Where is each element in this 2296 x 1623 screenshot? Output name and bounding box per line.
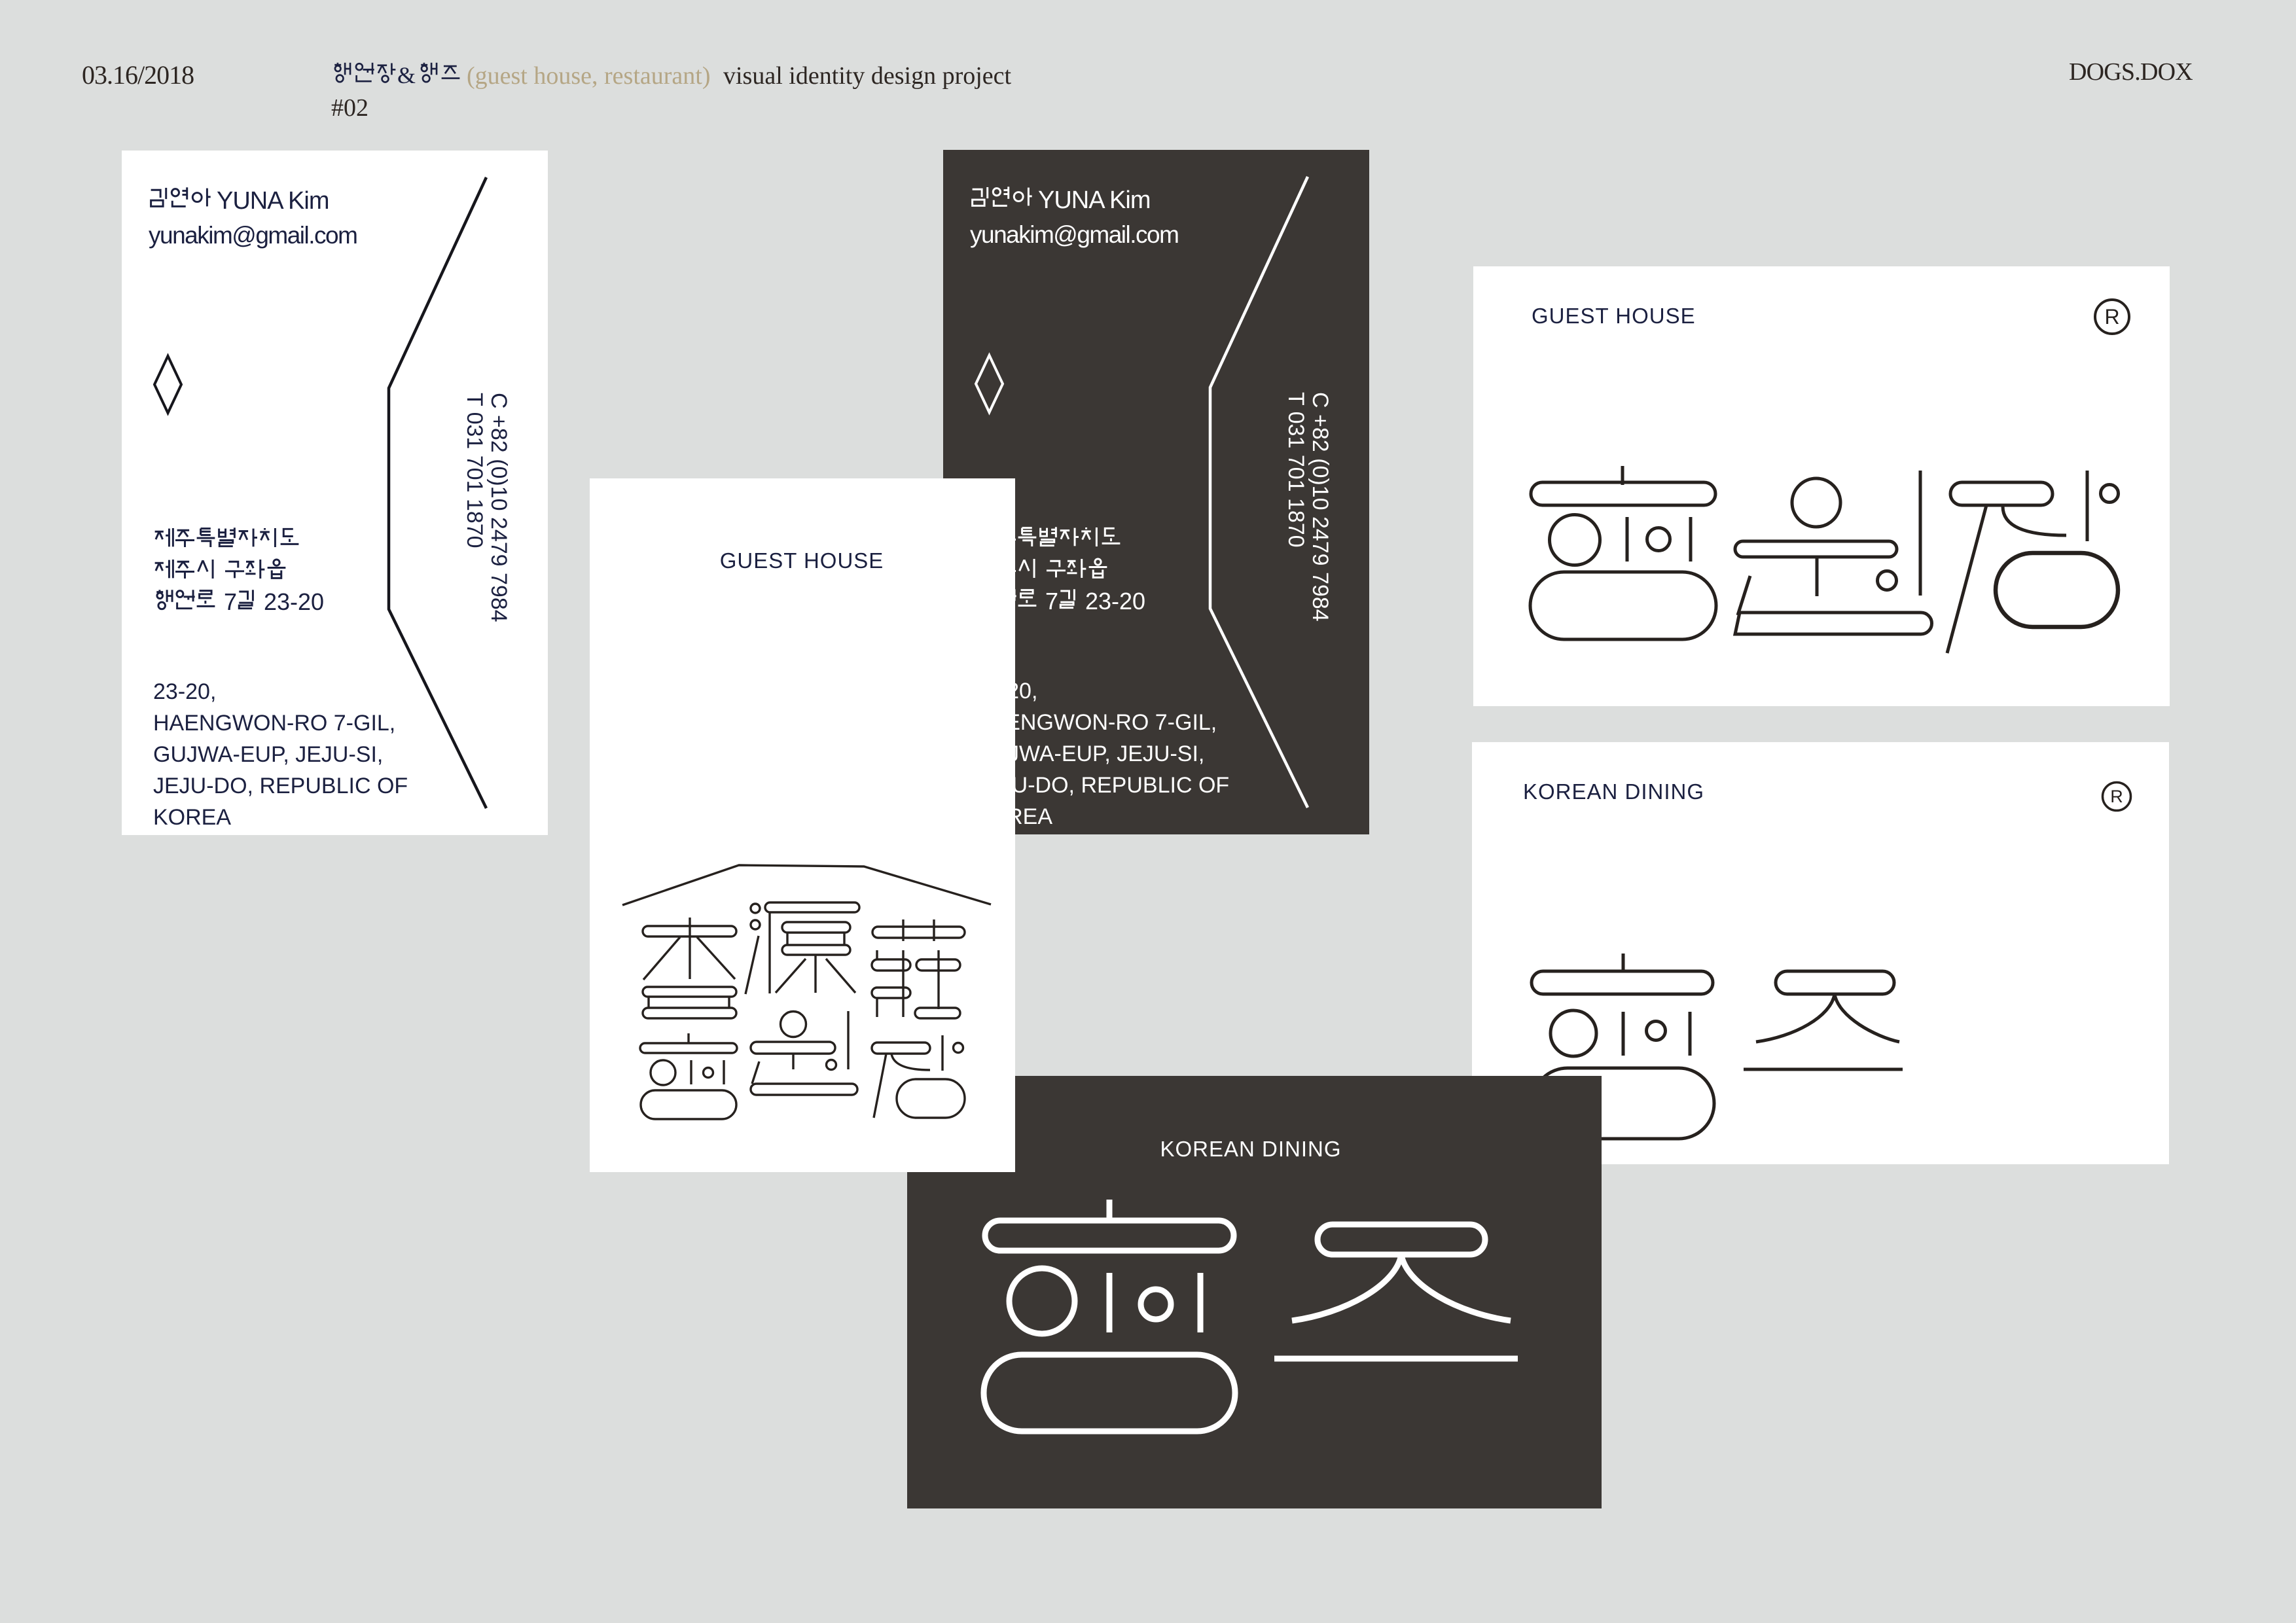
svg-text:YUNA Kim: YUNA Kim (1038, 187, 1150, 214)
svg-text:yunakim@gmail.com: yunakim@gmail.com (970, 221, 1178, 248)
svg-text:R: R (2110, 787, 2123, 806)
svg-text:JEJU-DO, REPUBLIC OF: JEJU-DO, REPUBLIC OF (153, 774, 408, 798)
svg-text:GUJWA-EUP, JEJU-SI,: GUJWA-EUP, JEJU-SI, (153, 742, 383, 767)
svg-text:T 031 701 1870: T 031 701 1870 (1283, 392, 1308, 548)
svg-text:7: 7 (1045, 588, 1058, 615)
svg-text:03.16/2018: 03.16/2018 (82, 60, 194, 90)
svg-text:yunakim@gmail.com: yunakim@gmail.com (149, 222, 357, 249)
svg-text:#02: #02 (331, 94, 368, 122)
svg-text:C +82 (0)10 2479 7984: C +82 (0)10 2479 7984 (1308, 392, 1333, 622)
svg-text:GUEST HOUSE: GUEST HOUSE (720, 548, 884, 573)
svg-text:KOREA: KOREA (153, 805, 231, 830)
svg-text:KOREAN DINING: KOREAN DINING (1523, 779, 1704, 804)
svg-text:visual identity design project: visual identity design project (723, 62, 1012, 90)
svg-text:GUEST HOUSE: GUEST HOUSE (1532, 304, 1696, 328)
svg-text:C +82 (0)10 2479 7984: C +82 (0)10 2479 7984 (486, 393, 511, 622)
svg-text:&: & (397, 62, 416, 88)
svg-text:HAENGWON-RO 7-GIL,: HAENGWON-RO 7-GIL, (153, 711, 395, 736)
svg-text:T 031 701 1870: T 031 701 1870 (462, 393, 487, 548)
svg-text:YUNA Kim: YUNA Kim (217, 187, 329, 215)
svg-text:23-20,: 23-20, (153, 679, 216, 704)
svg-text:R: R (2104, 305, 2119, 329)
svg-text:23-20: 23-20 (264, 588, 324, 615)
svg-text:7: 7 (224, 588, 237, 615)
svg-text:KOREAN DINING: KOREAN DINING (1160, 1137, 1341, 1161)
svg-text:DOGS.DOX: DOGS.DOX (2069, 58, 2193, 86)
svg-text:(guest house, restaurant): (guest house, restaurant) (467, 62, 711, 90)
svg-text:23-20: 23-20 (1085, 588, 1145, 615)
